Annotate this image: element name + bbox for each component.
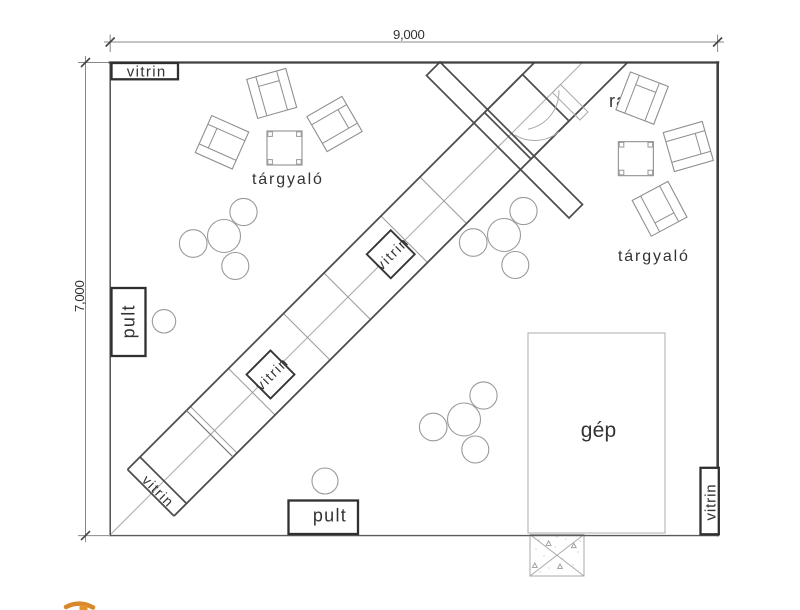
svg-text:vitrin: vitrin	[139, 472, 178, 511]
svg-text:vitrin: vitrin	[127, 64, 167, 81]
svg-text:tárgyaló: tárgyaló	[618, 248, 690, 265]
svg-text:7,000: 7,000	[72, 280, 87, 312]
svg-text:tárgyaló: tárgyaló	[252, 171, 324, 188]
svg-text:vitrin: vitrin	[702, 483, 719, 520]
svg-text:9,000: 9,000	[393, 27, 425, 42]
svg-text:pult: pult	[119, 304, 139, 338]
svg-text:gép: gép	[581, 419, 617, 442]
svg-text:pult: pult	[313, 506, 347, 526]
